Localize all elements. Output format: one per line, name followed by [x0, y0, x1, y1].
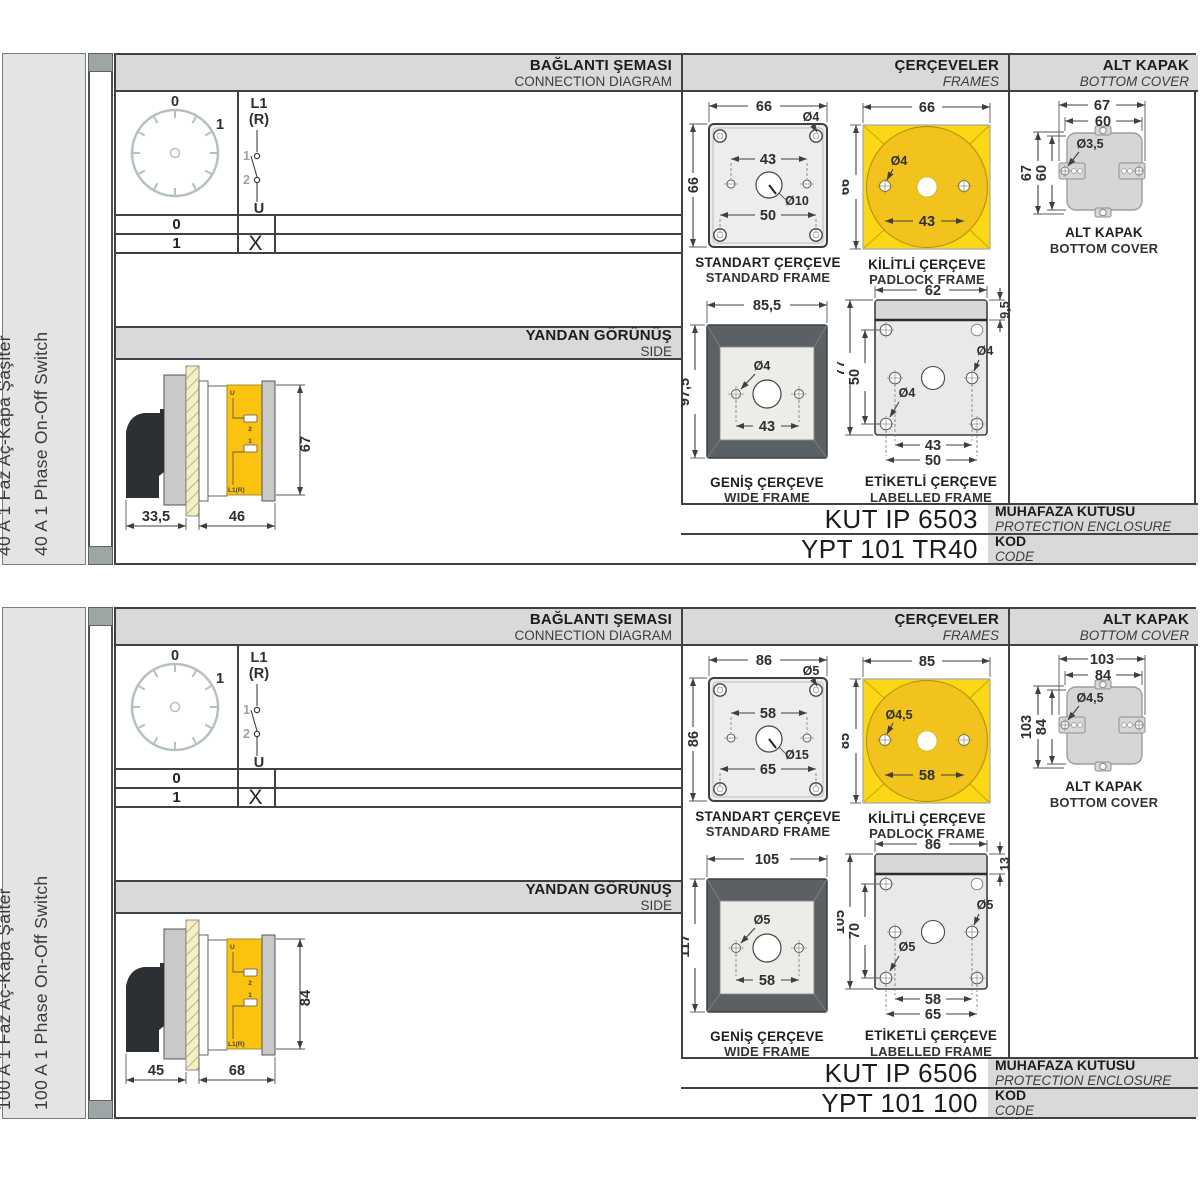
- cover-title-tr: ALT KAPAK: [1065, 225, 1143, 240]
- dim-height: 85: [842, 733, 853, 749]
- dim-width-outer: 103: [1090, 652, 1114, 668]
- dim-hole-right: Ø4: [977, 344, 994, 358]
- header-side-view: YANDAN GÖRÜNÜŞ SIDE: [116, 326, 681, 360]
- dim-body-depth: 68: [229, 1063, 245, 1079]
- code-label-tr: KOD: [995, 1088, 1026, 1103]
- header-bottom-cover: ALT KAPAK BOTTOM COVER: [1008, 609, 1198, 646]
- header-connection-tr: BAĞLANTI ŞEMASI: [530, 611, 672, 628]
- dim-height: 84: [298, 990, 314, 1006]
- header-cover-tr: ALT KAPAK: [1103, 611, 1189, 628]
- side-view-drawing: U 2 1 L1(R) 67 33,5 46: [116, 358, 682, 563]
- dim-tab-hole: Ø3,5: [1076, 137, 1103, 151]
- code-label-en: CODE: [995, 549, 1034, 564]
- body-terminal-2: 2: [248, 426, 252, 433]
- table-mark-1: X: [237, 235, 274, 252]
- labelled-frame-title-tr: ETİKETLİ ÇERÇEVE: [865, 474, 997, 489]
- bottom-cover-drawing: 67 60 67 60 Ø3,5 ALT KAPAK BOTTOM COVER: [1012, 95, 1200, 263]
- wide-frame-title-en: WIDE FRAME: [724, 1044, 810, 1059]
- dim-height: 67: [298, 436, 314, 452]
- header-connection-en: CONNECTION DIAGRAM: [514, 74, 672, 89]
- dim-lower-spacing: 65: [760, 762, 776, 778]
- product-name-turkish: 100 A 1 Faz Aç-Kapa Şalter: [0, 888, 15, 1110]
- dim-lower-spacing: 50: [760, 208, 776, 224]
- dim-width-outer: 67: [1094, 98, 1110, 114]
- dim-strip-height: 13: [998, 857, 1012, 871]
- front-plate: [164, 375, 186, 505]
- dim-height: 66: [842, 179, 853, 195]
- header-frames-tr: ÇERÇEVELER: [894, 57, 999, 74]
- terminal-u: U: [254, 755, 264, 768]
- product-name-english: 40 A 1 Phase On-Off Switch: [31, 332, 52, 556]
- dim-body-depth: 46: [229, 509, 245, 525]
- code-label-en: CODE: [995, 1103, 1034, 1118]
- strip-marker-top: [88, 53, 113, 72]
- standard-frame-title-tr: STANDART ÇERÇEVE: [695, 809, 840, 824]
- product-name-turkish: 40 A 1 Faz Aç-Kapa Şaşlter: [0, 335, 15, 556]
- standard-frame-drawing: 66 Ø4 66 43 Ø10 50 STANDART ÇERÇEVE STAN…: [682, 93, 858, 287]
- dial-position-1: 1: [216, 671, 224, 687]
- dial-position-0: 0: [171, 648, 179, 664]
- padlock-frame-drawing: Ø4,5 58 85 85 KİLİTLİ ÇERÇEVE PADLOCK FR…: [842, 647, 1000, 841]
- strip-marker-bottom: [88, 1100, 113, 1119]
- dim-height-inner: 84: [1034, 719, 1050, 735]
- header-bottom-cover: ALT KAPAK BOTTOM COVER: [1008, 55, 1198, 92]
- dim-center-hole: Ø15: [785, 748, 809, 762]
- dim-hole: Ø5: [754, 913, 771, 927]
- switch-body: [227, 385, 262, 495]
- wide-frame-title-en: WIDE FRAME: [724, 490, 810, 505]
- switch-handle: [126, 963, 164, 1052]
- standard-frame-title-tr: STANDART ÇERÇEVE: [695, 255, 840, 270]
- center-hole: [917, 731, 937, 751]
- side-view-en: SIDE: [640, 898, 672, 913]
- table-pos-0: 0: [116, 216, 237, 233]
- switch-handle: [126, 409, 164, 498]
- wide-frame-drawing: Ø4 43 85,5 97,5 GENİŞ ÇERÇEVE WIDE FRAME: [682, 290, 858, 506]
- dim-lower-spacing: 65: [925, 1007, 941, 1023]
- dim-width: 62: [925, 283, 941, 299]
- terminal-l1: L1: [251, 650, 268, 666]
- switch-blade: [251, 710, 257, 731]
- header-frames-en: FRAMES: [943, 628, 999, 643]
- enclosure-code: KUT IP 6506: [681, 1059, 988, 1087]
- body-terminal-l1r: L1(R): [228, 487, 245, 494]
- back-plate: [262, 935, 275, 1055]
- center-hole: [922, 367, 945, 390]
- enclosure-label-tr: MUHAFAZA KUTUSU: [995, 1058, 1135, 1073]
- dim-hole-spacing: 43: [759, 419, 775, 435]
- dim-width: 86: [756, 653, 772, 669]
- table-pos-0: 0: [116, 770, 237, 787]
- enclosure-label-en: PROTECTION ENCLOSURE: [995, 519, 1171, 534]
- header-connection-diagram: BAĞLANTI ŞEMASI CONNECTION DIAGRAM: [116, 609, 681, 646]
- back-plate: [262, 381, 275, 501]
- header-connection-en: CONNECTION DIAGRAM: [514, 628, 672, 643]
- dim-hole-spacing: 58: [760, 706, 776, 722]
- dim-hole-spacing: 58: [925, 992, 941, 1008]
- dim-width-inner: 84: [1095, 668, 1111, 684]
- enclosure-label: MUHAFAZA KUTUSU PROTECTION ENCLOSURE: [988, 1059, 1198, 1087]
- dim-tab-hole: Ø4,5: [1076, 691, 1103, 705]
- product-label-panel: 40 A 1 Faz Aç-Kapa Şaşlter 40 A 1 Phase …: [2, 53, 86, 565]
- dim-hole-spacing: 43: [925, 438, 941, 454]
- code-label-tr: KOD: [995, 534, 1026, 549]
- contact-2-label: 2: [243, 727, 250, 741]
- dim-width: 66: [756, 99, 772, 115]
- switch-blade: [251, 156, 257, 177]
- dim-height: 97,5: [682, 378, 693, 406]
- dim-width: 66: [919, 100, 935, 116]
- contact-schematic: L1 (R) 1 2 U: [237, 646, 297, 768]
- dim-height-outer: 67: [1019, 165, 1035, 181]
- dim-width: 105: [755, 852, 779, 868]
- dim-handle-depth: 33,5: [142, 509, 170, 525]
- side-view-tr: YANDAN GÖRÜNÜŞ: [526, 881, 672, 898]
- header-connection-diagram: BAĞLANTI ŞEMASI CONNECTION DIAGRAM: [116, 55, 681, 92]
- center-hole: [917, 177, 937, 197]
- labelled-frame-drawing: 86 13 105 70 Ø5 Ø5 58 65 ETİKETLİ: [837, 837, 1014, 1063]
- front-plate: [164, 929, 186, 1059]
- dim-inner-height: 50: [847, 369, 863, 385]
- product-section: 40 A 1 Faz Aç-Kapa Şaşlter 40 A 1 Phase …: [2, 53, 1196, 565]
- switch-body: [227, 939, 262, 1049]
- standard-frame-title-en: STANDARD FRAME: [706, 824, 831, 839]
- product-label-panel: 100 A 1 Faz Aç-Kapa Şalter 100 A 1 Phase…: [2, 607, 86, 1119]
- contact-schematic: L1 (R) 1 2 U: [237, 92, 297, 214]
- section-table: BAĞLANTI ŞEMASI CONNECTION DIAGRAM ÇERÇE…: [114, 607, 1196, 1119]
- header-frames: ÇERÇEVELER FRAMES: [681, 609, 1008, 646]
- row-line-2: [116, 252, 683, 254]
- dim-height: 117: [682, 934, 693, 957]
- dim-hole-spacing: 58: [919, 768, 935, 784]
- dim-lock-hole: Ø4,5: [885, 708, 912, 722]
- cover-title-en: BOTTOM COVER: [1050, 795, 1159, 810]
- section-table: BAĞLANTI ŞEMASI CONNECTION DIAGRAM ÇERÇE…: [114, 53, 1196, 565]
- wide-frame-title-tr: GENİŞ ÇERÇEVE: [710, 1029, 824, 1044]
- padlock-frame-title-tr: KİLİTLİ ÇERÇEVE: [868, 811, 986, 826]
- binding-strip: [88, 607, 113, 1119]
- dim-strip-height: 9,5: [998, 301, 1012, 318]
- dim-corner-hole: Ø5: [803, 664, 820, 678]
- dim-hole: Ø4: [754, 359, 771, 373]
- cover-title-en: BOTTOM COVER: [1050, 241, 1159, 256]
- dim-hole-right: Ø5: [977, 898, 994, 912]
- side-view-tr: YANDAN GÖRÜNÜŞ: [526, 327, 672, 344]
- product-code: YPT 101 TR40: [681, 535, 988, 563]
- dim-hole-left: Ø5: [899, 940, 916, 954]
- bottom-cover-drawing: 103 84 103 84 Ø4,5 ALT KAPAK BOTTOM COVE…: [1012, 649, 1200, 817]
- contact-1-label: 1: [243, 703, 250, 717]
- header-frames-en: FRAMES: [943, 74, 999, 89]
- dim-lock-hole: Ø4: [891, 154, 908, 168]
- dial-position-0: 0: [171, 94, 179, 110]
- wide-frame-drawing: Ø5 58 105 117 GENİŞ ÇERÇEVE WIDE FRAME: [682, 844, 858, 1060]
- header-connection-tr: BAĞLANTI ŞEMASI: [530, 57, 672, 74]
- dim-hole-spacing: 43: [760, 152, 776, 168]
- dim-lower-spacing: 50: [925, 453, 941, 469]
- dim-hole-spacing: 43: [919, 214, 935, 230]
- dim-corner-hole: Ø4: [803, 110, 820, 124]
- row-line-2: [116, 806, 683, 808]
- dim-width: 85,5: [753, 298, 781, 314]
- dim-height-outer: 103: [1019, 715, 1035, 739]
- labelled-frame-title-tr: ETİKETLİ ÇERÇEVE: [865, 1028, 997, 1043]
- code-label: KOD CODE: [988, 535, 1198, 563]
- body-terminal-l1r: L1(R): [228, 1041, 245, 1048]
- dim-width: 86: [925, 837, 941, 853]
- product-code: YPT 101 100: [681, 1089, 988, 1117]
- header-side-view: YANDAN GÖRÜNÜŞ SIDE: [116, 880, 681, 914]
- label-strip: [876, 855, 986, 873]
- dim-inner-height: 70: [847, 923, 863, 939]
- code-label: KOD CODE: [988, 1089, 1198, 1117]
- contact-1-label: 1: [243, 149, 250, 163]
- side-view-drawing: U 2 1 L1(R) 84 45 68: [116, 912, 682, 1117]
- standard-frame-drawing: 86 Ø5 86 58 Ø15 65 STANDART ÇERÇEVE STAN…: [682, 647, 858, 841]
- terminal-l1: L1: [251, 96, 268, 112]
- enclosure-label-tr: MUHAFAZA KUTUSU: [995, 504, 1135, 519]
- strip-marker-bottom: [88, 546, 113, 565]
- center-hole: [753, 380, 781, 408]
- dial-position-1: 1: [216, 117, 224, 133]
- padlock-frame-drawing: Ø4 43 66 66 KİLİTLİ ÇERÇEVE PADLOCK FRAM…: [842, 93, 1000, 287]
- dim-height: 66: [686, 177, 702, 193]
- enclosure-label-en: PROTECTION ENCLOSURE: [995, 1073, 1171, 1088]
- dim-width: 85: [919, 654, 935, 670]
- standard-frame-title-en: STANDARD FRAME: [706, 270, 831, 285]
- header-frames-tr: ÇERÇEVELER: [894, 611, 999, 628]
- contact-2-label: 2: [243, 173, 250, 187]
- enclosure-code: KUT IP 6503: [681, 505, 988, 533]
- header-cover-en: BOTTOM COVER: [1080, 628, 1189, 643]
- side-view-en: SIDE: [640, 344, 672, 359]
- header-cover-tr: ALT KAPAK: [1103, 57, 1189, 74]
- terminal-u: U: [254, 201, 264, 214]
- center-hole: [922, 921, 945, 944]
- terminal-r: (R): [249, 112, 269, 128]
- wide-frame-title-tr: GENİŞ ÇERÇEVE: [710, 475, 824, 490]
- body-terminal-1: 1: [248, 438, 252, 445]
- table-mark-1: X: [237, 789, 274, 806]
- body-terminal-u: U: [230, 390, 235, 397]
- dim-center-hole: Ø10: [785, 194, 809, 208]
- dim-width-inner: 60: [1095, 114, 1111, 130]
- padlock-frame-title-tr: KİLİTLİ ÇERÇEVE: [868, 257, 986, 272]
- dim-hole-left: Ø4: [899, 386, 916, 400]
- product-name-english: 100 A 1 Phase On-Off Switch: [31, 876, 52, 1110]
- label-strip: [876, 301, 986, 319]
- dim-hole-spacing: 58: [759, 973, 775, 989]
- dim-height: 86: [686, 731, 702, 747]
- strip-marker-top: [88, 607, 113, 626]
- datasheet-page: 40 A 1 Faz Aç-Kapa Şaşlter 40 A 1 Phase …: [0, 0, 1200, 1198]
- labelled-frame-drawing: 62 9,5 77 50 Ø4 Ø4 43 50 ETİKETLİ: [837, 283, 1014, 509]
- product-section: 100 A 1 Faz Aç-Kapa Şalter 100 A 1 Phase…: [2, 607, 1196, 1119]
- terminal-r: (R): [249, 666, 269, 682]
- body-terminal-1: 1: [248, 992, 252, 999]
- cover-title-tr: ALT KAPAK: [1065, 779, 1143, 794]
- enclosure-label: MUHAFAZA KUTUSU PROTECTION ENCLOSURE: [988, 505, 1198, 533]
- header-cover-en: BOTTOM COVER: [1080, 74, 1189, 89]
- center-hole: [753, 934, 781, 962]
- body-terminal-2: 2: [248, 980, 252, 987]
- header-frames: ÇERÇEVELER FRAMES: [681, 55, 1008, 92]
- table-pos-1: 1: [116, 789, 237, 806]
- dim-handle-depth: 45: [148, 1063, 164, 1079]
- body-terminal-u: U: [230, 944, 235, 951]
- table-pos-1: 1: [116, 235, 237, 252]
- binding-strip: [88, 53, 113, 565]
- dim-height-inner: 60: [1034, 165, 1050, 181]
